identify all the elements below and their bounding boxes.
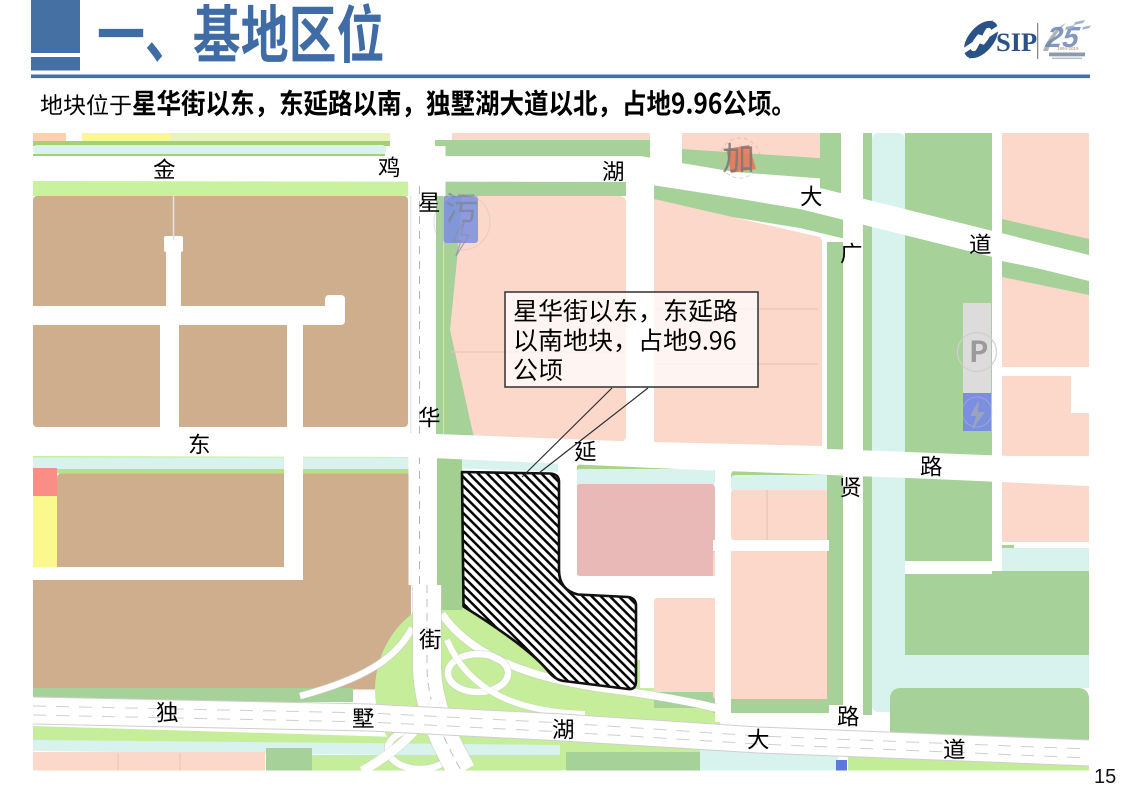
svg-text:15: 15: [1094, 766, 1116, 788]
svg-text:SIP: SIP: [996, 27, 1037, 57]
svg-text:1994-2019: 1994-2019: [1057, 46, 1079, 51]
